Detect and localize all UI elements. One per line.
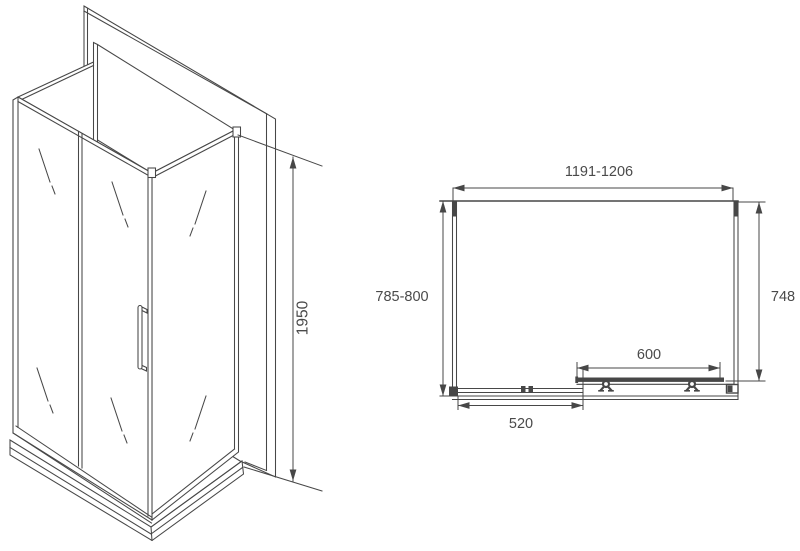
plan-view: 1191-1206 785-800 748 600 [375,164,795,432]
sliding-door-panel [577,378,724,382]
wall-profiles [449,201,739,396]
plan-outline [440,201,738,400]
right-side-glass [152,130,239,520]
door-roller [685,381,699,391]
drawing-sheet: 1950 [0,0,800,551]
height-dimension-label: 1950 [295,300,312,335]
side-dimension-label: 748 [771,289,795,305]
isometric-view: 1950 [10,6,322,541]
width-dimension-label: 1191-1206 [565,164,633,180]
dimension-depth: 785-800 [375,201,446,396]
rail-clip [521,386,526,393]
corner-cap-front [148,168,156,178]
dimension-fixed-panel: 520 [458,369,583,432]
rail-clip [529,386,534,393]
technical-drawing-canvas: 1950 [0,0,800,551]
door-stopper [727,385,739,394]
dimension-width: 1191-1206 [453,164,733,200]
door-roller [599,381,613,391]
dimension-side: 748 [726,202,795,381]
door-dimension-label: 600 [637,347,661,363]
fixed-panel-dimension-label: 520 [509,416,533,432]
dimension-door: 600 [577,347,720,378]
front-rail-and-door [453,377,739,394]
depth-dimension-label: 785-800 [375,289,428,305]
